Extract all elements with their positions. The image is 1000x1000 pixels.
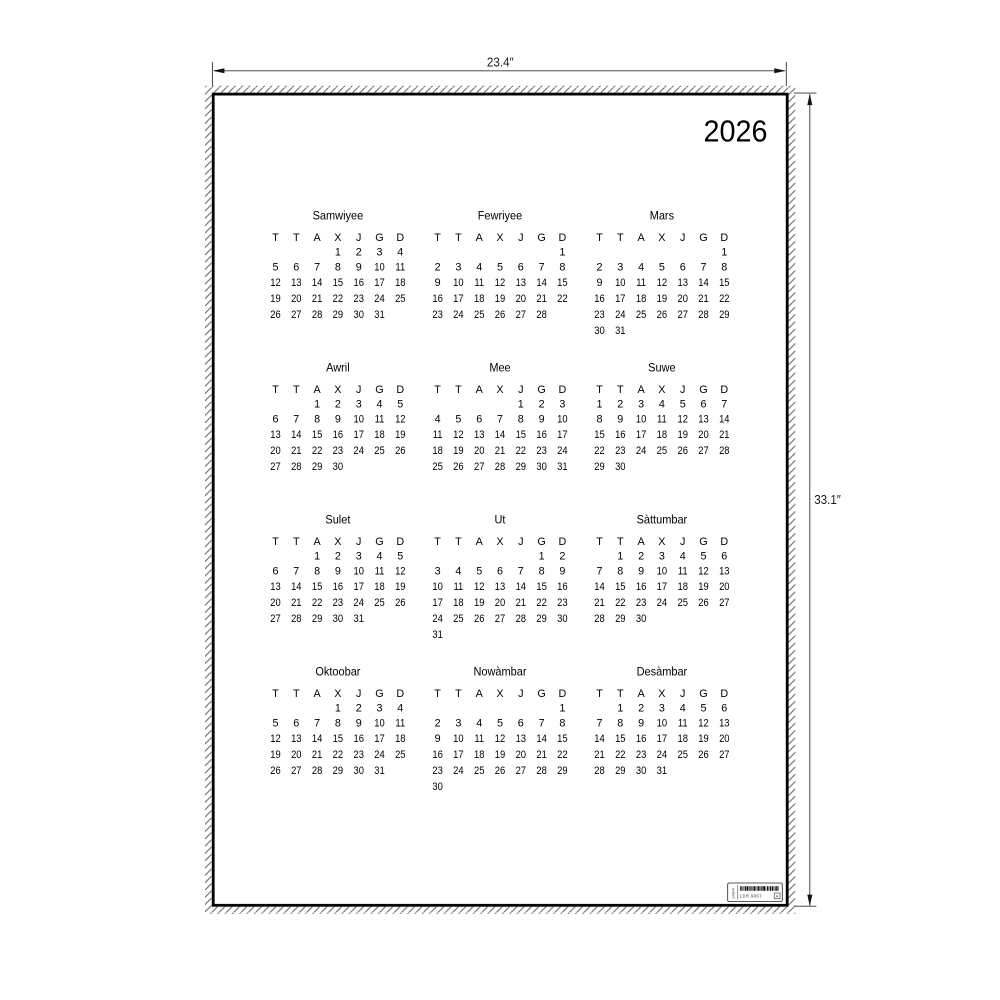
svg-text:21: 21 [312,749,322,761]
svg-text:14: 14 [495,429,505,441]
svg-text:23: 23 [615,445,625,457]
svg-text:15: 15 [615,581,625,593]
svg-text:27: 27 [291,309,301,321]
svg-text:16: 16 [333,429,343,441]
svg-text:15: 15 [594,429,604,441]
svg-text:15: 15 [615,733,625,745]
svg-text:T: T [596,536,603,548]
svg-text:18: 18 [636,293,646,305]
svg-text:13: 13 [516,277,526,289]
svg-text:7: 7 [700,261,706,273]
svg-text:X: X [658,688,665,700]
svg-text:12: 12 [698,565,708,577]
svg-text:20: 20 [495,597,505,609]
svg-text:2: 2 [638,550,644,562]
svg-text:9: 9 [559,565,565,577]
svg-text:J: J [518,232,523,244]
svg-text:Sàttumbar: Sàttumbar [637,512,688,526]
svg-text:24: 24 [657,597,667,609]
svg-text:31: 31 [374,765,384,777]
svg-text:4: 4 [397,702,403,714]
svg-text:29: 29 [615,613,625,625]
svg-text:7: 7 [596,565,602,577]
svg-text:T: T [272,688,279,700]
svg-text:26: 26 [495,309,505,321]
svg-text:Fewriyee: Fewriyee [478,208,523,222]
svg-text:19: 19 [657,293,667,305]
svg-text:10: 10 [615,277,625,289]
svg-text:5: 5 [455,413,461,425]
svg-text:19: 19 [698,733,708,745]
svg-text:3: 3 [356,398,362,410]
svg-text:J: J [518,688,523,700]
svg-text:14: 14 [291,429,301,441]
svg-text:20: 20 [698,429,708,441]
svg-text:X: X [496,232,503,244]
svg-text:25: 25 [474,309,484,321]
svg-text:4: 4 [638,261,644,273]
svg-text:28: 28 [291,613,301,625]
svg-text:26: 26 [657,309,667,321]
svg-text:9: 9 [356,717,362,729]
svg-text:4: 4 [376,398,382,410]
svg-text:X: X [334,688,341,700]
svg-text:21: 21 [698,293,708,305]
svg-text:30: 30 [353,765,363,777]
svg-text:J: J [680,536,685,548]
svg-text:26: 26 [698,597,708,609]
svg-text:27: 27 [719,597,729,609]
svg-text:18: 18 [474,749,484,761]
svg-text:28: 28 [516,613,526,625]
svg-text:T: T [596,232,603,244]
svg-text:7: 7 [314,261,320,273]
svg-text:18: 18 [374,429,384,441]
svg-text:14: 14 [594,733,604,745]
svg-text:19: 19 [677,429,687,441]
svg-text:T: T [455,232,462,244]
svg-text:1: 1 [559,702,565,714]
svg-text:28: 28 [291,461,301,473]
svg-text:16: 16 [536,429,546,441]
svg-text:D: D [720,688,728,700]
svg-text:26: 26 [698,749,708,761]
svg-text:31: 31 [557,461,567,473]
svg-text:A: A [476,232,484,244]
svg-text:J: J [356,384,361,396]
svg-text:29: 29 [312,461,322,473]
svg-text:17: 17 [636,429,646,441]
svg-text:X: X [496,688,503,700]
svg-text:12: 12 [270,277,280,289]
svg-text:LDR 9067: LDR 9067 [740,893,762,898]
svg-text:23: 23 [636,749,646,761]
svg-text:14: 14 [312,733,322,745]
svg-text:25: 25 [636,309,646,321]
svg-text:T: T [293,536,300,548]
svg-text:26: 26 [677,445,687,457]
svg-text:3: 3 [455,261,461,273]
svg-text:20: 20 [291,749,301,761]
svg-text:3: 3 [435,565,441,577]
svg-text:6: 6 [476,413,482,425]
svg-text:16: 16 [636,733,646,745]
svg-text:9: 9 [335,565,341,577]
svg-text:10: 10 [353,413,363,425]
svg-text:16: 16 [615,429,625,441]
svg-text:22: 22 [312,445,322,457]
svg-text:19: 19 [395,581,405,593]
svg-text:14: 14 [516,581,526,593]
svg-text:17: 17 [657,733,667,745]
svg-text:19: 19 [495,749,505,761]
svg-text:19: 19 [395,429,405,441]
svg-text:30: 30 [536,461,546,473]
svg-text:23: 23 [432,765,442,777]
svg-text:1: 1 [721,246,727,258]
svg-text:17: 17 [615,293,625,305]
svg-text:5: 5 [497,261,503,273]
svg-text:23: 23 [536,445,546,457]
svg-text:18: 18 [374,581,384,593]
svg-text:28: 28 [594,613,604,625]
svg-text:D: D [396,688,404,700]
svg-text:12: 12 [677,413,687,425]
svg-text:29: 29 [516,461,526,473]
svg-text:9: 9 [617,413,623,425]
svg-text:G: G [699,688,707,700]
svg-text:27: 27 [270,613,280,625]
svg-text:27: 27 [291,765,301,777]
svg-text:14: 14 [312,277,322,289]
svg-text:D: D [558,536,566,548]
svg-text:12: 12 [495,277,505,289]
svg-text:G: G [699,232,707,244]
svg-text:22: 22 [615,749,625,761]
svg-text:4: 4 [435,413,441,425]
svg-text:T: T [272,384,279,396]
svg-text:G: G [537,232,545,244]
svg-text:25: 25 [395,293,405,305]
svg-text:25: 25 [657,445,667,457]
svg-text:X: X [334,536,341,548]
svg-text:A: A [313,536,321,548]
svg-text:X: X [658,536,665,548]
svg-text:31: 31 [432,629,442,641]
svg-text:10: 10 [374,717,384,729]
svg-text:19: 19 [270,749,280,761]
svg-text:22: 22 [557,293,567,305]
svg-text:X: X [658,232,665,244]
svg-text:9: 9 [435,277,441,289]
svg-text:17: 17 [353,429,363,441]
svg-text:9: 9 [335,413,341,425]
svg-text:A: A [637,232,645,244]
svg-text:19: 19 [270,293,280,305]
svg-text:25: 25 [432,461,442,473]
svg-text:23: 23 [353,749,363,761]
svg-text:J: J [680,232,685,244]
svg-text:9: 9 [435,733,441,745]
svg-text:21: 21 [291,445,301,457]
svg-text:28: 28 [495,461,505,473]
svg-text:A: A [313,232,321,244]
svg-text:14: 14 [594,581,604,593]
svg-text:6: 6 [497,565,503,577]
svg-text:7: 7 [293,413,299,425]
svg-text:22: 22 [333,749,343,761]
svg-text:15: 15 [719,277,729,289]
svg-text:8: 8 [335,261,341,273]
svg-text:11: 11 [678,717,688,729]
svg-text:10: 10 [557,413,567,425]
svg-text:2: 2 [596,261,602,273]
svg-text:7: 7 [518,565,524,577]
svg-text:2: 2 [539,398,545,410]
svg-text:20: 20 [474,445,484,457]
svg-text:24: 24 [615,309,625,321]
svg-text:6: 6 [680,261,686,273]
svg-text:29: 29 [312,613,322,625]
svg-text:21: 21 [719,429,729,441]
svg-text:D: D [558,688,566,700]
svg-text:23.4″: 23.4″ [487,56,514,70]
svg-text:30: 30 [636,613,646,625]
svg-text:26: 26 [270,765,280,777]
svg-text:30: 30 [432,781,442,793]
svg-text:7: 7 [596,717,602,729]
svg-text:29: 29 [719,309,729,321]
svg-text:T: T [434,536,441,548]
svg-text:D: D [558,384,566,396]
svg-text:17: 17 [657,581,667,593]
svg-text:22: 22 [615,597,625,609]
svg-text:12: 12 [495,733,505,745]
svg-text:A: A [313,384,321,396]
svg-text:27: 27 [495,613,505,625]
svg-text:5: 5 [700,550,706,562]
svg-text:A: A [637,536,645,548]
svg-text:22: 22 [516,445,526,457]
svg-text:4: 4 [397,246,403,258]
svg-text:6: 6 [518,261,524,273]
svg-text:Awril: Awril [326,360,350,374]
svg-text:6: 6 [700,398,706,410]
svg-text:1: 1 [335,702,341,714]
svg-text:13: 13 [291,277,301,289]
svg-text:17: 17 [557,429,567,441]
svg-text:11: 11 [375,413,385,425]
svg-text:2: 2 [435,261,441,273]
svg-text:15: 15 [333,733,343,745]
svg-text:26: 26 [395,445,405,457]
svg-text:21: 21 [594,597,604,609]
svg-text:5: 5 [272,717,278,729]
svg-text:8: 8 [518,413,524,425]
svg-text:24: 24 [353,445,363,457]
svg-text:2: 2 [638,702,644,714]
svg-text:30: 30 [636,765,646,777]
svg-text:J: J [356,232,361,244]
svg-text:8: 8 [596,413,602,425]
svg-text:1: 1 [596,398,602,410]
svg-text:10: 10 [432,581,442,593]
svg-text:5: 5 [476,565,482,577]
svg-text:28: 28 [594,765,604,777]
svg-text:T: T [617,384,624,396]
svg-text:5: 5 [397,550,403,562]
svg-text:13: 13 [270,429,280,441]
svg-text:22: 22 [557,749,567,761]
svg-text:1: 1 [559,246,565,258]
svg-text:27: 27 [677,309,687,321]
svg-text:12: 12 [698,717,708,729]
svg-text:T: T [293,384,300,396]
svg-text:1: 1 [617,550,623,562]
svg-text:11: 11 [636,277,646,289]
svg-text:19: 19 [453,445,463,457]
svg-text:1: 1 [314,398,320,410]
svg-text:X: X [334,232,341,244]
svg-text:10: 10 [657,717,667,729]
svg-text:30: 30 [615,461,625,473]
svg-text:T: T [272,232,279,244]
svg-text:19: 19 [698,581,708,593]
svg-text:20: 20 [719,581,729,593]
svg-text:29: 29 [594,461,604,473]
svg-text:T: T [596,384,603,396]
svg-text:13: 13 [516,733,526,745]
svg-text:15: 15 [312,581,322,593]
svg-text:17: 17 [432,597,442,609]
svg-text:X: X [334,384,341,396]
svg-text:18: 18 [677,581,687,593]
svg-text:10: 10 [453,277,463,289]
svg-text:27: 27 [516,765,526,777]
svg-text:7: 7 [497,413,503,425]
svg-text:9: 9 [539,413,545,425]
svg-text:18: 18 [395,277,405,289]
svg-text:T: T [455,536,462,548]
svg-text:2: 2 [435,717,441,729]
svg-text:4: 4 [476,717,482,729]
svg-text:G: G [699,384,707,396]
svg-text:20: 20 [270,597,280,609]
svg-text:A: A [476,688,484,700]
svg-text:17: 17 [374,277,384,289]
svg-text:2: 2 [335,550,341,562]
svg-text:T: T [434,688,441,700]
svg-text:22: 22 [333,293,343,305]
svg-text:17: 17 [353,581,363,593]
svg-text:25: 25 [453,613,463,625]
svg-text:3: 3 [455,717,461,729]
svg-text:16: 16 [636,581,646,593]
svg-text:27: 27 [270,461,280,473]
svg-text:14: 14 [536,733,546,745]
svg-text:4: 4 [659,398,665,410]
svg-text:11: 11 [433,429,443,441]
svg-text:3: 3 [376,702,382,714]
svg-text:28: 28 [312,309,322,321]
svg-text:20: 20 [516,749,526,761]
svg-text:11: 11 [375,565,385,577]
svg-text:7: 7 [314,717,320,729]
svg-text:3: 3 [559,398,565,410]
svg-text:1: 1 [617,702,623,714]
svg-text:27: 27 [474,461,484,473]
svg-text:11: 11 [395,261,405,273]
svg-text:3: 3 [638,398,644,410]
svg-text:15: 15 [312,429,322,441]
svg-text:20: 20 [677,293,687,305]
svg-text:8: 8 [335,717,341,729]
svg-text:10: 10 [353,565,363,577]
svg-text:28: 28 [719,445,729,457]
svg-text:10: 10 [374,261,384,273]
svg-text:21: 21 [594,749,604,761]
svg-text:5: 5 [659,261,665,273]
svg-text:A: A [476,536,484,548]
svg-text:D: D [396,232,404,244]
svg-text:24: 24 [432,613,442,625]
svg-text:26: 26 [270,309,280,321]
svg-text:23: 23 [557,597,567,609]
svg-text:30: 30 [333,613,343,625]
svg-text:14: 14 [536,277,546,289]
svg-text:6: 6 [272,413,278,425]
svg-text:9: 9 [596,277,602,289]
svg-text:23: 23 [636,597,646,609]
svg-text:25: 25 [374,445,384,457]
svg-text:16: 16 [353,733,363,745]
svg-text:15: 15 [536,581,546,593]
svg-text:1: 1 [518,398,524,410]
svg-text:26: 26 [495,765,505,777]
svg-text:G: G [375,536,383,548]
svg-text:22: 22 [719,293,729,305]
svg-text:12: 12 [270,733,280,745]
svg-text:24: 24 [374,749,384,761]
svg-text:15: 15 [557,277,567,289]
svg-text:30: 30 [557,613,567,625]
svg-text:7: 7 [721,398,727,410]
svg-text:22: 22 [312,597,322,609]
svg-text:16: 16 [594,293,604,305]
svg-text:17: 17 [374,733,384,745]
svg-text:T: T [617,688,624,700]
svg-text:15: 15 [333,277,343,289]
svg-text:14: 14 [291,581,301,593]
svg-text:Mee: Mee [489,360,511,374]
svg-text:22: 22 [594,445,604,457]
svg-text:3: 3 [617,261,623,273]
svg-text:1: 1 [539,550,545,562]
svg-text:29: 29 [333,309,343,321]
svg-text:11: 11 [454,581,464,593]
svg-text:30: 30 [333,461,343,473]
svg-text:11: 11 [474,733,484,745]
svg-text:12: 12 [453,429,463,441]
svg-text:13: 13 [291,733,301,745]
svg-text:A: A [637,688,645,700]
svg-text:4: 4 [680,550,686,562]
svg-text:T: T [455,384,462,396]
svg-text:2: 2 [356,702,362,714]
svg-text:4: 4 [680,702,686,714]
svg-text:J: J [356,536,361,548]
svg-text:J: J [518,536,523,548]
